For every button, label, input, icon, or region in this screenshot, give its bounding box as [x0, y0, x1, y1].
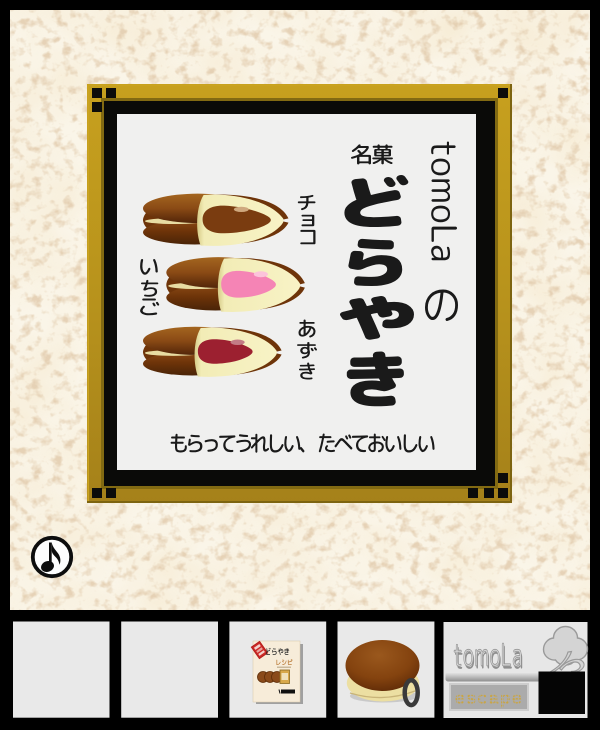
svg-text:escape: escape — [455, 688, 523, 708]
